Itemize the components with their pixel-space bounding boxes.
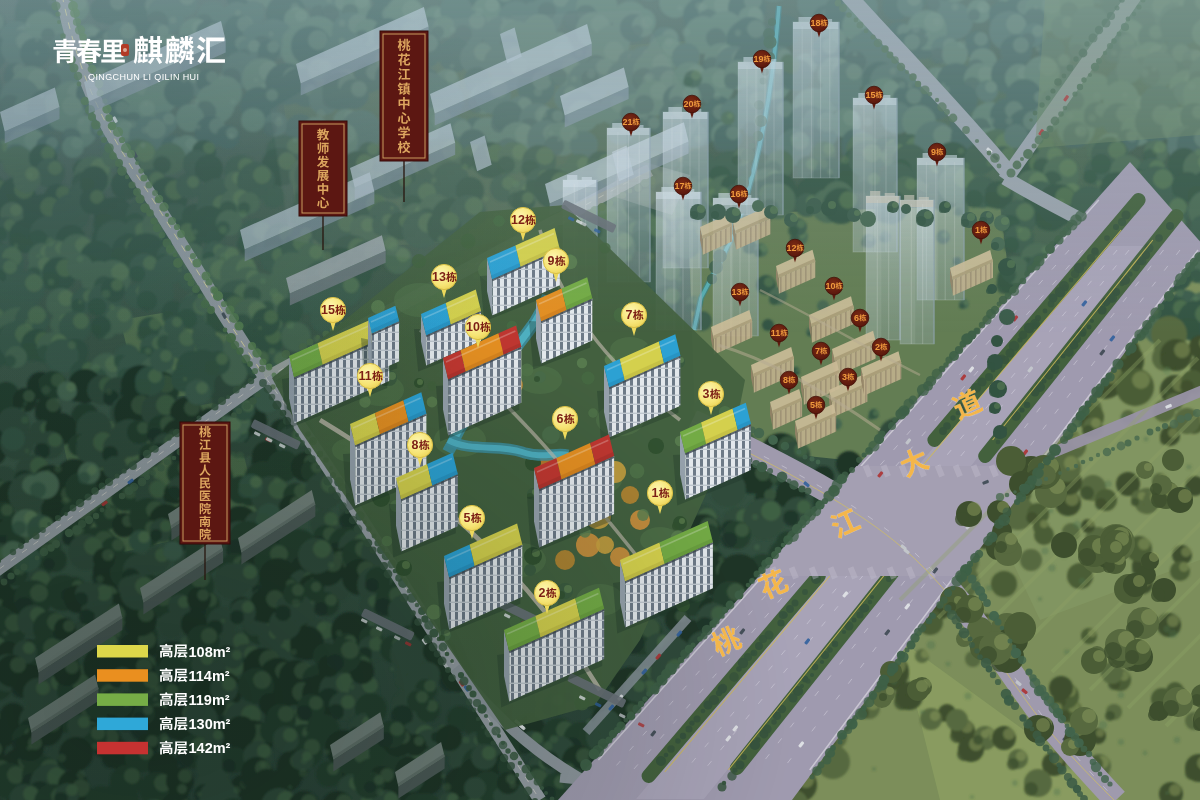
svg-text:130m²: 130m² (189, 716, 231, 732)
svg-text:6: 6 (557, 412, 564, 426)
svg-text:9: 9 (931, 147, 936, 157)
svg-text:108m²: 108m² (189, 644, 231, 660)
svg-text:12: 12 (786, 243, 796, 253)
svg-text:16: 16 (730, 189, 740, 199)
svg-text:2: 2 (875, 342, 880, 352)
svg-text:3: 3 (703, 387, 710, 401)
svg-text:18: 18 (810, 18, 820, 28)
svg-text:11: 11 (358, 369, 371, 383)
svg-text:QINGCHUN LI QILIN HUI: QINGCHUN LI QILIN HUI (88, 72, 199, 82)
svg-text:20: 20 (683, 99, 693, 109)
svg-text:7: 7 (626, 308, 633, 322)
svg-text:2: 2 (539, 586, 546, 600)
svg-text:119m²: 119m² (189, 692, 230, 708)
svg-text:8: 8 (412, 438, 419, 452)
svg-text:15: 15 (865, 90, 875, 100)
svg-text:3: 3 (842, 372, 847, 382)
svg-text:8: 8 (783, 375, 788, 385)
svg-text:9: 9 (548, 254, 555, 268)
svg-text:1: 1 (975, 225, 980, 235)
svg-text:114m²: 114m² (189, 668, 230, 684)
svg-text:7: 7 (815, 346, 820, 356)
svg-text:142m²: 142m² (189, 740, 231, 756)
svg-text:10: 10 (466, 320, 480, 334)
svg-text:6: 6 (854, 313, 859, 323)
svg-text:12: 12 (511, 213, 525, 227)
svg-text:21: 21 (622, 117, 632, 127)
svg-text:13: 13 (731, 287, 741, 297)
svg-text:10: 10 (825, 281, 835, 291)
svg-text:1: 1 (652, 486, 659, 500)
svg-text:19: 19 (753, 54, 763, 64)
svg-text:13: 13 (432, 270, 446, 284)
svg-text:17: 17 (674, 181, 684, 191)
svg-text:15: 15 (321, 303, 335, 317)
svg-text:5: 5 (810, 400, 815, 410)
svg-text:11: 11 (771, 328, 781, 338)
svg-text:5: 5 (464, 511, 471, 525)
